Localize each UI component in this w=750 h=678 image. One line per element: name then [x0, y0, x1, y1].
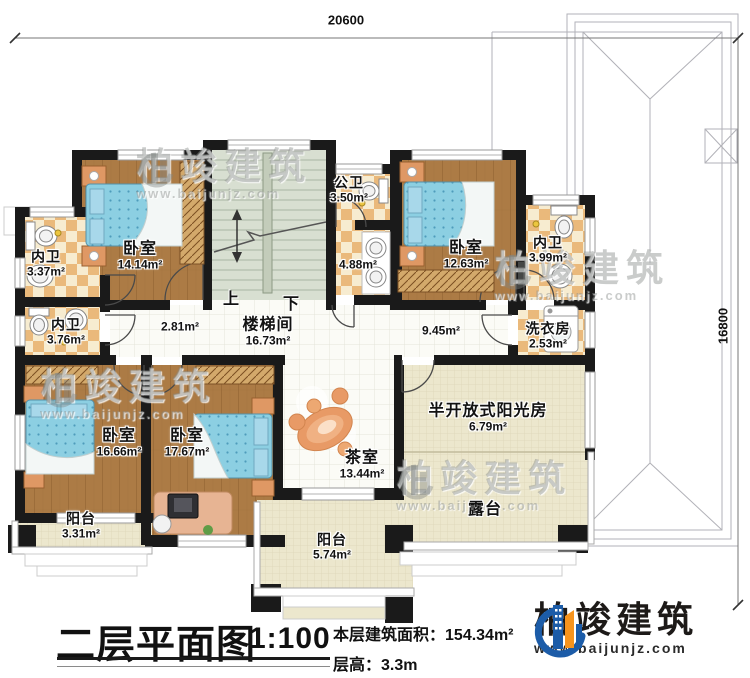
wardrobe — [398, 270, 494, 292]
stairs-up-label: 上 — [223, 285, 239, 309]
room-label-bedroom-4: 卧室17.67m² — [165, 427, 210, 458]
room-label-bedroom-2: 卧室12.63m² — [444, 239, 489, 270]
room-label-sunroom: 半开放式阳光房6.79m² — [428, 402, 547, 433]
room-label-hall-large: 9.45m² — [422, 324, 460, 337]
bed — [26, 400, 94, 474]
bed — [404, 182, 494, 246]
room-label-laundry: 洗衣房2.53m² — [526, 321, 571, 350]
nightstand — [252, 398, 274, 414]
room-label-public-bath: 公卫3.50m² — [330, 175, 368, 204]
room-label-stairwell: 楼梯间16.73m² — [242, 316, 293, 347]
floor-height-value: 3.3m — [381, 657, 417, 674]
dimension-right: 16800 — [716, 308, 731, 344]
room-label-bath-1: 内卫3.37m² — [27, 249, 65, 278]
room-label-bath-3: 内卫3.99m² — [529, 235, 567, 264]
room-label-hall-small: 2.81m² — [161, 320, 199, 333]
chair — [153, 515, 171, 533]
brand-logo: 柏竣建筑 www.baijunjz.com — [534, 602, 698, 655]
desk — [153, 492, 232, 535]
nightstand — [252, 480, 274, 496]
room-label-tea-room: 茶室13.44m² — [340, 449, 385, 480]
bed — [86, 184, 182, 246]
brand-logo-icon — [534, 602, 586, 666]
room-label-bath-2: 内卫3.76m² — [47, 317, 85, 346]
floor-height-line: 层高：3.3m — [333, 651, 417, 675]
floor-area-label: 本层建筑面积： — [333, 627, 445, 644]
sink — [548, 264, 572, 288]
floor-plan-drawing — [0, 0, 750, 678]
plan-scale: 1:100 — [249, 622, 331, 656]
room-label-bedroom-1: 卧室14.14m² — [118, 240, 163, 271]
room-label-balcony-1: 阳台3.31m² — [62, 511, 100, 540]
wardrobe — [180, 162, 204, 264]
wardrobe — [196, 366, 274, 384]
pillar — [385, 597, 413, 623]
wardrobe — [26, 366, 98, 384]
room-label-terrace: 露台 — [468, 501, 502, 519]
dimension-top: 20600 — [328, 13, 364, 28]
floor-area-value: 154.34m² — [445, 627, 514, 644]
floor-area-line: 本层建筑面积：154.34m² — [333, 621, 514, 645]
plant — [203, 525, 213, 535]
room-label-bedroom-3: 卧室16.66m² — [97, 427, 142, 458]
floorplan-page: 柏竣建筑 www.baijunjz.com 柏竣建筑 www.baijunjz.… — [0, 0, 750, 678]
room-label-balcony-2: 阳台5.74m² — [313, 532, 351, 561]
floor-height-label: 层高： — [333, 657, 381, 674]
title-underline — [57, 657, 330, 667]
room-label-vanity: 4.88m² — [339, 258, 377, 271]
stairs-down-label: 下 — [283, 290, 299, 314]
